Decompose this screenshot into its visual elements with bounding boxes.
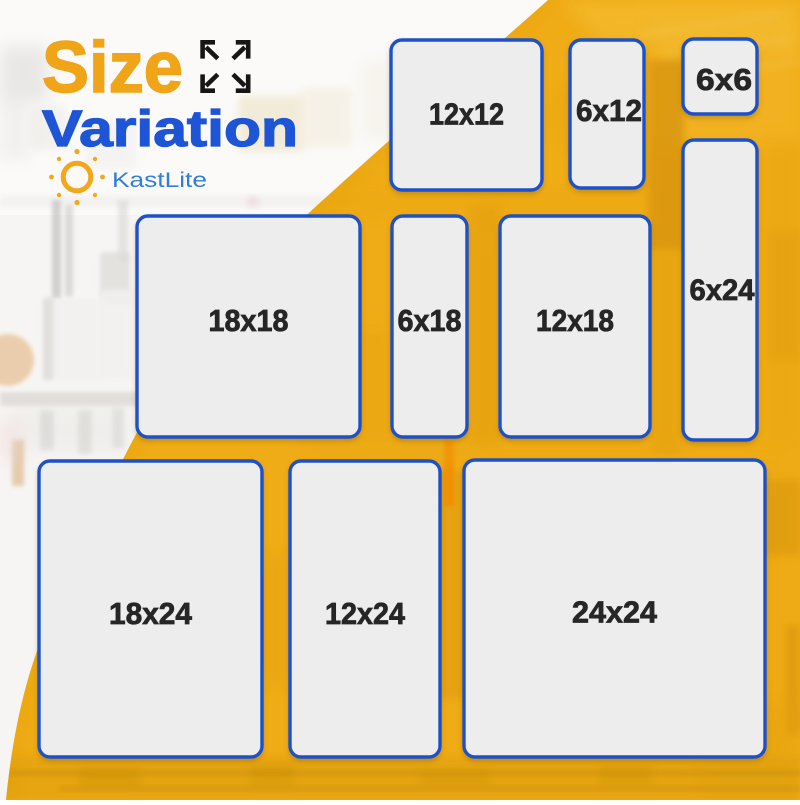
svg-text:18x18: 18x18	[209, 304, 289, 338]
svg-text:12x12: 12x12	[429, 98, 504, 132]
svg-text:12x18: 12x18	[536, 304, 614, 338]
svg-text:6x6: 6x6	[696, 63, 752, 97]
svg-text:Size: Size	[42, 28, 183, 108]
svg-text:12x24: 12x24	[325, 597, 405, 631]
svg-text:24x24: 24x24	[572, 596, 657, 630]
svg-text:Variation: Variation	[42, 100, 298, 157]
svg-text:6x24: 6x24	[690, 274, 755, 307]
svg-text:6x12: 6x12	[576, 94, 642, 128]
svg-text:6x18: 6x18	[398, 304, 462, 338]
svg-text:18x24: 18x24	[109, 597, 192, 631]
svg-text:KastLite: KastLite	[112, 169, 207, 192]
